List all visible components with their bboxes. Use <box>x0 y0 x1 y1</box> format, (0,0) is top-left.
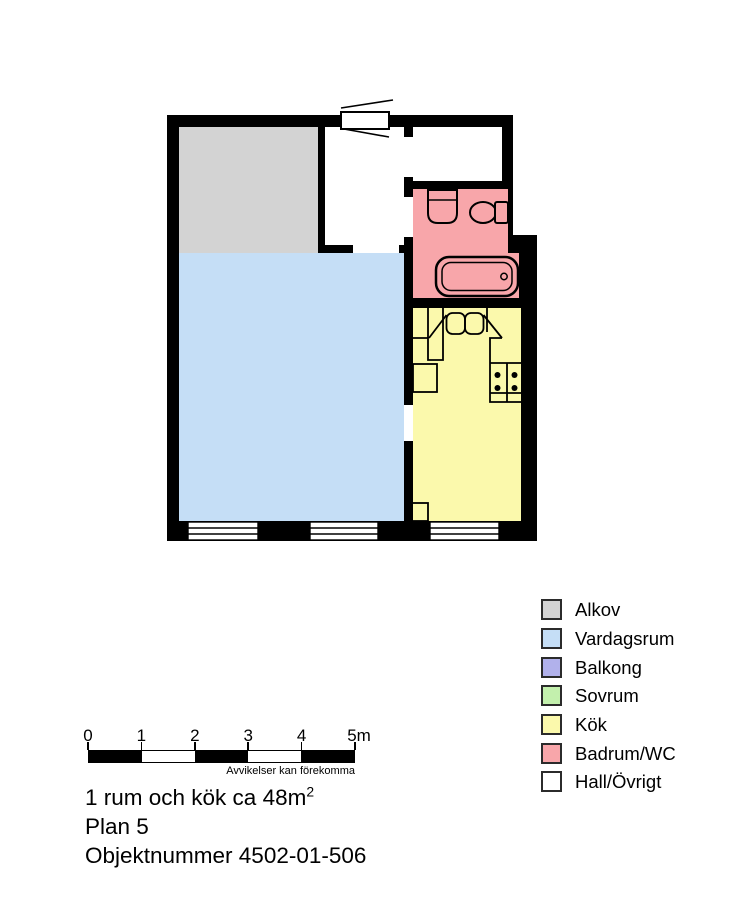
apartment-area-text: 1 rum och kök ca 48m <box>85 785 306 810</box>
window-1 <box>188 522 258 540</box>
apartment-area-line: 1 rum och kök ca 48m2 <box>85 783 366 812</box>
opening-hall-bathroom <box>404 197 413 237</box>
scale-tickmark <box>301 742 303 750</box>
scale-tickmark <box>354 742 356 750</box>
room-kitchen <box>413 308 521 521</box>
legend-label-hall: Hall/Övrigt <box>575 771 661 792</box>
scale-seg-black <box>301 751 354 762</box>
legend-label-balkong: Balkong <box>575 657 642 678</box>
apartment-info: 1 rum och kök ca 48m2 Plan 5 Objektnumme… <box>85 783 366 870</box>
opening-livingroom-kitchen <box>404 405 413 441</box>
scale-tickmark <box>194 742 196 750</box>
scale-tickmark <box>87 742 89 750</box>
legend-row-badrum: Badrum/WC <box>541 742 676 764</box>
room-closet <box>413 127 502 181</box>
window-2 <box>310 522 378 540</box>
legend-label-badrum: Badrum/WC <box>575 743 676 764</box>
legend-row-hall: Hall/Övrigt <box>541 771 676 793</box>
scale-seg-white <box>248 751 301 762</box>
legend-row-kok: Kök <box>541 714 676 736</box>
scale-bar-strip <box>88 750 355 763</box>
entry-door-leafbox <box>341 112 389 129</box>
legend-swatch-vardagsrum <box>541 628 562 649</box>
legend-label-sovrum: Sovrum <box>575 685 639 706</box>
legend-label-alkov: Alkov <box>575 599 620 620</box>
legend: Alkov Vardagsrum Balkong Sovrum Kök Badr… <box>541 599 676 800</box>
legend-row-sovrum: Sovrum <box>541 685 676 707</box>
opening-hall-livingroom <box>353 245 399 253</box>
room-livingroom <box>179 253 404 521</box>
scale-seg-white <box>142 751 195 762</box>
legend-swatch-kok <box>541 714 562 735</box>
legend-swatch-badrum <box>541 743 562 764</box>
legend-swatch-hall <box>541 771 562 792</box>
legend-label-vardagsrum: Vardagsrum <box>575 628 674 649</box>
scale-disclaimer: Avvikelser kan förekomma <box>88 765 355 777</box>
apartment-floor-line: Plan 5 <box>85 812 366 841</box>
entry-door-swing-upper <box>341 100 393 108</box>
legend-swatch-alkov <box>541 599 562 620</box>
scale-tickmark <box>247 742 249 750</box>
scale-seg-black <box>89 751 142 762</box>
legend-row-vardagsrum: Vardagsrum <box>541 628 676 650</box>
floorplan-page: Alkov Vardagsrum Balkong Sovrum Kök Badr… <box>0 0 742 900</box>
legend-label-kok: Kök <box>575 714 607 735</box>
apartment-area-sup: 2 <box>306 784 314 800</box>
apartment-objectnumber-line: Objektnummer 4502-01-506 <box>85 841 366 870</box>
room-hall <box>325 127 404 245</box>
scale-tickmark <box>141 742 143 750</box>
windows <box>188 522 499 540</box>
scale-seg-black <box>195 751 248 762</box>
legend-row-alkov: Alkov <box>541 599 676 621</box>
opening-hall-closet <box>404 137 413 177</box>
legend-row-balkong: Balkong <box>541 656 676 678</box>
legend-swatch-sovrum <box>541 685 562 706</box>
scale-tick-5: 5m <box>347 726 371 746</box>
window-3 <box>430 522 499 540</box>
legend-swatch-balkong <box>541 657 562 678</box>
room-alkov <box>179 127 318 253</box>
